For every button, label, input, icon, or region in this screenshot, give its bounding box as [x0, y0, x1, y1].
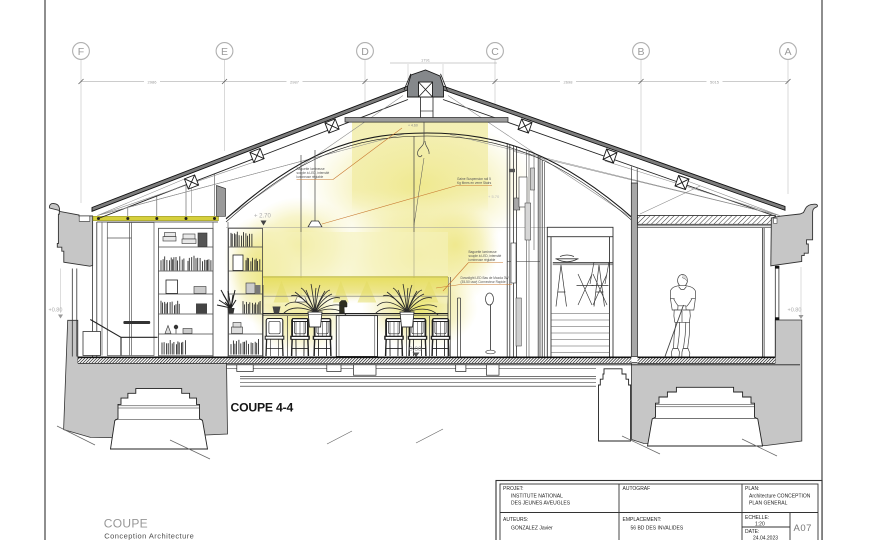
svg-text:24.04.2023: 24.04.2023	[753, 536, 778, 540]
svg-text:(35-50 usw) Connecteur Rapide: (35-50 usw) Connecteur Rapide	[461, 280, 506, 284]
svg-text:+0.80: +0.80	[788, 308, 802, 314]
svg-text:E: E	[221, 46, 228, 58]
svg-text:+ 5.70: + 5.70	[488, 194, 500, 199]
svg-text:56 BD DES INVALIDES: 56 BD DES INVALIDES	[631, 526, 684, 532]
svg-text:Architecture CONCEPTION: Architecture CONCEPTION	[749, 494, 811, 500]
svg-text:DATE:: DATE:	[745, 529, 759, 535]
svg-text:C: C	[491, 46, 499, 58]
svg-text:+ 4.60: + 4.60	[408, 124, 418, 128]
svg-text:0.00: 0.00	[409, 346, 422, 353]
svg-text:+ 2.70: + 2.70	[254, 214, 272, 220]
svg-text:AUTEURS:: AUTEURS:	[503, 517, 528, 523]
svg-text:A07: A07	[794, 523, 812, 534]
svg-text:2698: 2698	[564, 79, 574, 84]
svg-text:2987: 2987	[290, 79, 300, 84]
svg-text:ECHELLE:: ECHELLE:	[745, 515, 769, 521]
svg-text:D: D	[361, 46, 369, 58]
svg-text:COUPE: COUPE	[104, 516, 148, 530]
svg-text:lumineuse réglable: lumineuse réglable	[469, 258, 496, 262]
svg-text:1:20: 1:20	[755, 522, 765, 528]
svg-text:Kg fibres en verre Stairs: Kg fibres en verre Stairs	[457, 181, 492, 185]
svg-text:DES JEUNES AVEUGLES: DES JEUNES AVEUGLES	[511, 501, 571, 507]
svg-text:INSTITUTE NATIONAL: INSTITUTE NATIONAL	[511, 494, 563, 500]
svg-text:COUPE 4-4: COUPE 4-4	[231, 400, 294, 414]
svg-text:lumineuse réglable: lumineuse réglable	[297, 175, 324, 179]
svg-text:PLAN GENERAL: PLAN GENERAL	[749, 501, 788, 507]
svg-text:EMPLACEMENT:: EMPLACEMENT:	[623, 517, 662, 523]
svg-text:F: F	[78, 46, 84, 58]
svg-text:+0.80: +0.80	[49, 308, 63, 314]
svg-text:PROJET:: PROJET:	[503, 486, 524, 492]
svg-text:AUTOGRAF: AUTOGRAF	[623, 486, 651, 492]
svg-text:GONZALEZ Javier: GONZALEZ Javier	[511, 526, 553, 532]
svg-text:1791: 1791	[421, 58, 431, 63]
svg-text:5015: 5015	[710, 79, 720, 84]
svg-text:B: B	[637, 46, 644, 58]
svg-text:2986: 2986	[148, 79, 158, 84]
svg-text:Conception Architecture: Conception Architecture	[104, 531, 194, 540]
svg-text:PLAN:: PLAN:	[745, 486, 759, 492]
svg-text:A: A	[784, 46, 791, 58]
